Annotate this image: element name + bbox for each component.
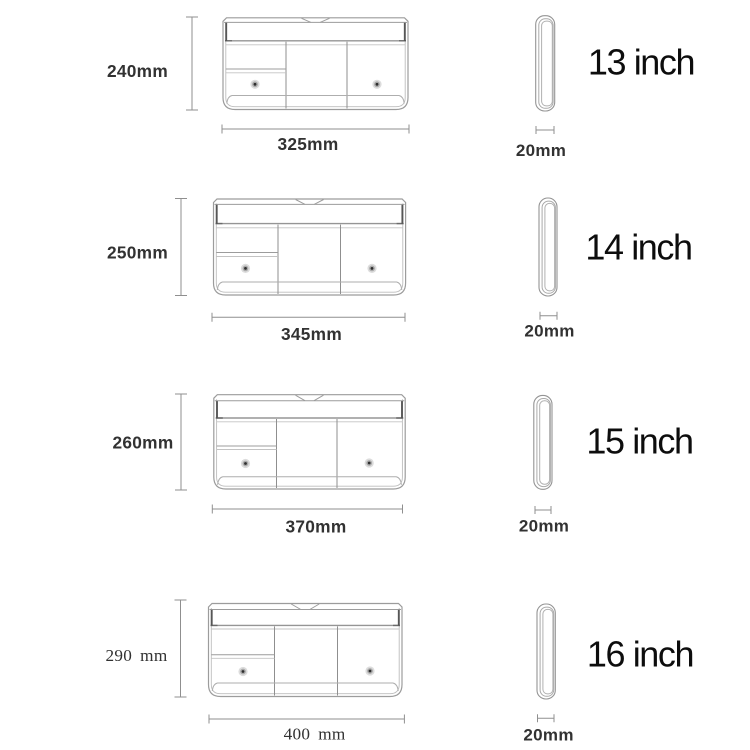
svg-text:20mm: 20mm	[519, 517, 569, 536]
svg-text:15 inch: 15 inch	[586, 421, 692, 462]
svg-text:20mm: 20mm	[523, 725, 573, 744]
svg-text:14 inch: 14 inch	[585, 227, 691, 268]
svg-text:250mm: 250mm	[107, 243, 168, 263]
svg-text:240mm: 240mm	[107, 61, 168, 81]
svg-text:290 mm: 290 mm	[105, 646, 167, 665]
svg-text:13 inch: 13 inch	[588, 42, 694, 83]
svg-text:370mm: 370mm	[285, 517, 346, 537]
svg-text:20mm: 20mm	[524, 322, 574, 341]
svg-text:260mm: 260mm	[112, 433, 173, 453]
svg-text:16 inch: 16 inch	[587, 634, 693, 675]
svg-text:325mm: 325mm	[277, 134, 338, 154]
svg-text:20mm: 20mm	[516, 141, 566, 160]
svg-text:400 mm: 400 mm	[284, 725, 346, 744]
svg-text:345mm: 345mm	[281, 324, 342, 344]
